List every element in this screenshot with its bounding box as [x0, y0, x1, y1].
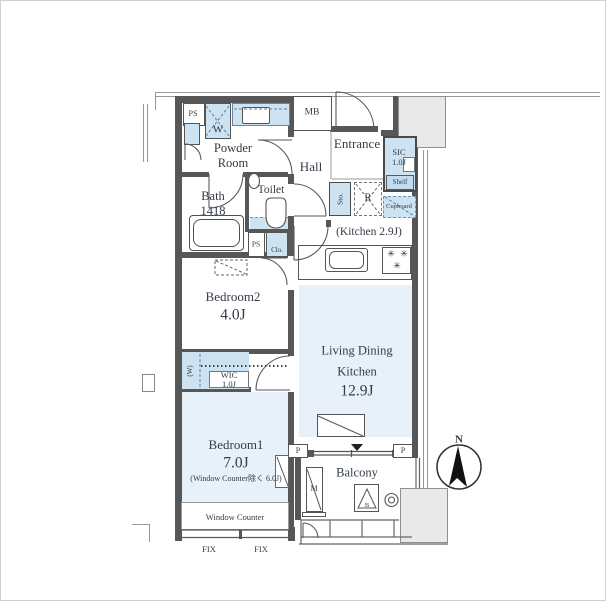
m-unit-label: M	[310, 484, 317, 494]
drain-icon	[385, 494, 398, 507]
compass-n-label: N	[455, 433, 463, 446]
cupboard-label: Cupboard	[386, 203, 412, 211]
hall-label: Hall	[300, 159, 322, 175]
fix-right-label: FIX	[254, 544, 268, 554]
pillar-left-label: P	[296, 446, 300, 456]
bedroom1-note-label: (Window Counter除く 6.0J)	[190, 474, 281, 484]
plan-linework	[0, 0, 606, 601]
shelf-label: Shelf	[393, 178, 408, 186]
entrance-label: Entrance	[334, 136, 380, 152]
b-hatch-label: B	[365, 502, 369, 510]
bath-label: Bath 1418	[189, 189, 237, 219]
pillar-right-label: P	[401, 446, 405, 456]
closet-label: Clo.	[271, 246, 283, 254]
ps-label: PS	[189, 109, 198, 119]
sic-label: SIC 1.0J	[385, 147, 413, 167]
fix-window	[177, 530, 294, 538]
meter-box-label: MB	[305, 107, 320, 118]
storage-label: Sto.	[336, 193, 345, 205]
diagonal-marks	[277, 416, 363, 510]
toilet-label: Toilet	[258, 184, 285, 198]
balcony-label: Balcony	[336, 466, 378, 481]
ldk-label-line1: Living Dining	[321, 344, 392, 359]
ps-mid-label: PS	[252, 240, 260, 249]
floor-plan: PS W Powder Room MB Entrance SIC 1.0J Sh…	[0, 0, 606, 601]
opening-marker-icon	[351, 444, 363, 451]
ldk-window	[310, 450, 394, 457]
fridge-label: R	[364, 193, 371, 206]
bedroom2-size-label: 4.0J	[220, 307, 245, 326]
powder-room-label: Powder Room	[198, 141, 268, 171]
washer-label: W	[213, 123, 223, 136]
window-counter-label: Window Counter	[206, 512, 264, 522]
fix-left-label: FIX	[202, 544, 216, 554]
compass-icon	[437, 445, 481, 489]
ldk-label-line2: Kitchen	[337, 365, 377, 380]
bedroom2-label: Bedroom2	[206, 289, 261, 305]
bedroom1-label: Bedroom1	[209, 437, 264, 453]
wic-w-label: (W)	[186, 365, 194, 376]
stove-burner-icon: ✳	[387, 249, 395, 260]
ldk-size-label: 12.9J	[340, 383, 373, 402]
wic-label: WIC 1.0J	[214, 371, 244, 389]
stove-burner-icon: ✳	[393, 261, 401, 272]
stove-burner-icon: ✳	[400, 249, 408, 260]
kitchen-label: (Kitchen 2.9J)	[336, 226, 402, 240]
toilet-icon	[249, 174, 287, 229]
bedroom1-size-label: 7.0J	[223, 455, 248, 474]
